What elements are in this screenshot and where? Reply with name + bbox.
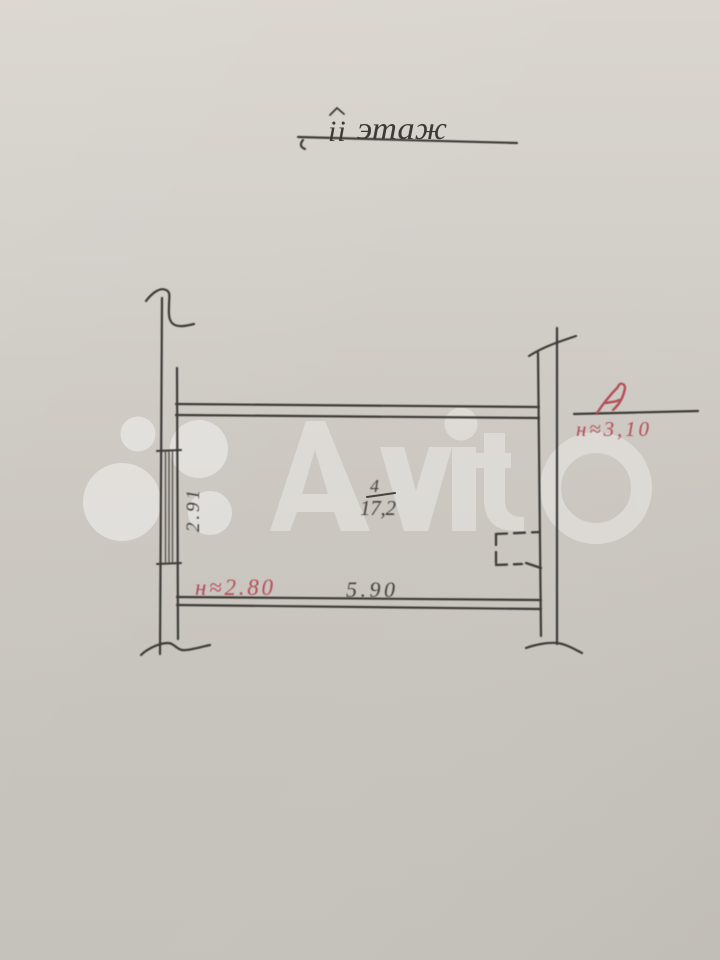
svg-text:этаж: этаж	[357, 110, 447, 146]
svg-text:2.91: 2.91	[183, 490, 204, 532]
svg-text:4: 4	[370, 476, 379, 496]
svg-text:ii: ii	[328, 115, 347, 148]
svg-text:17,2: 17,2	[360, 496, 397, 520]
svg-text:5.90: 5.90	[346, 577, 395, 602]
